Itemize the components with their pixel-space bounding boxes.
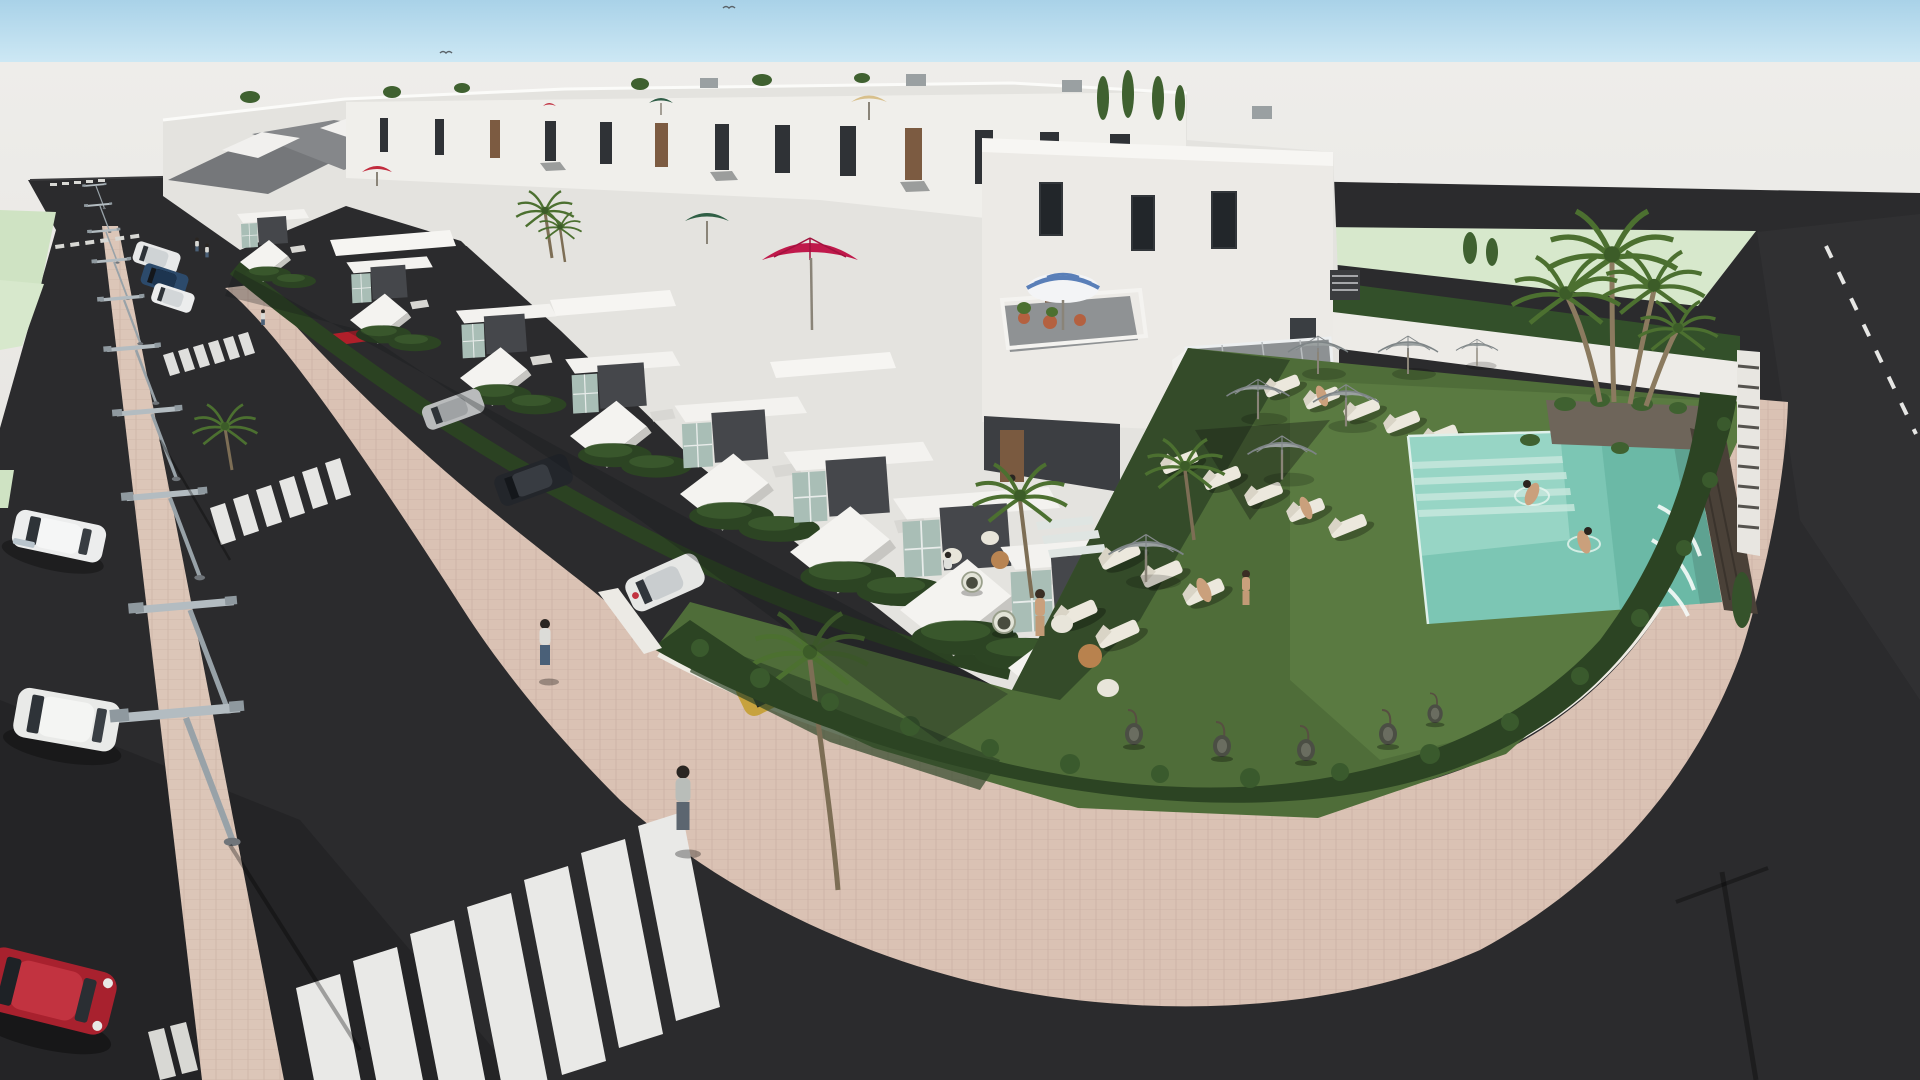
climbing-plant <box>1732 572 1752 628</box>
louver-wall <box>1737 350 1760 556</box>
sky <box>0 0 1920 66</box>
render-canvas <box>0 0 1920 1080</box>
architectural-render-scene <box>0 0 1920 1080</box>
